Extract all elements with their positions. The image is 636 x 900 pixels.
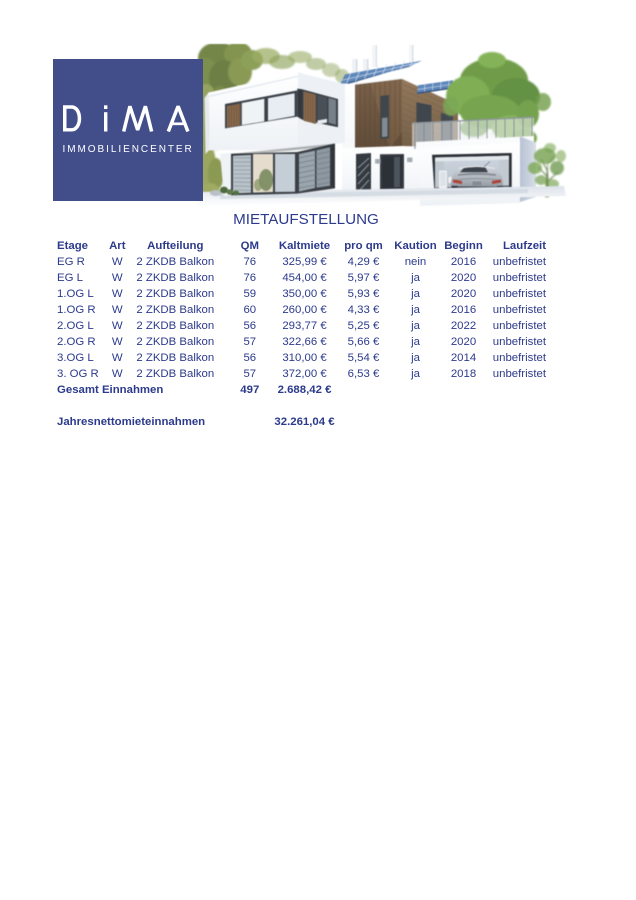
svg-text:IMMOBILIENCENTER: IMMOBILIENCENTER bbox=[63, 144, 194, 155]
